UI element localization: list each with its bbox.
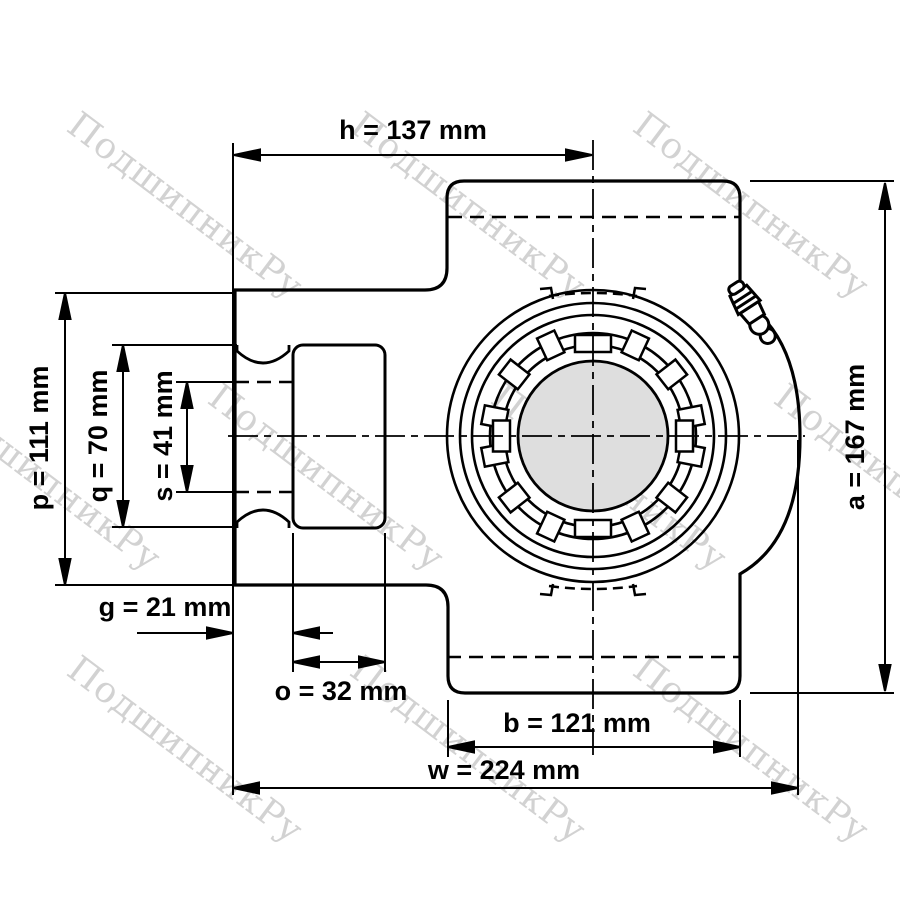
- watermark-text: ПодшипникРу: [60, 648, 311, 851]
- guide-groove-bottom: [237, 510, 289, 528]
- arrowhead: [234, 150, 260, 161]
- arrowhead: [60, 293, 71, 319]
- watermark-text: ПодшипникРу: [767, 376, 900, 579]
- drawing-canvas: ПодшипникРу ПодшипникРу ПодшипникРу Подш…: [0, 0, 900, 900]
- arrowhead: [60, 559, 71, 585]
- arrowhead: [293, 657, 319, 668]
- dimension-lines: [60, 150, 891, 794]
- arrowhead: [566, 150, 592, 161]
- dim-label-b: b = 121 mm: [503, 708, 651, 738]
- dim-label-o: o = 32 mm: [275, 676, 408, 706]
- arrowhead: [182, 382, 193, 408]
- arrowhead: [207, 628, 233, 639]
- arrowhead: [880, 183, 891, 209]
- dim-label-w: w = 224 mm: [427, 755, 580, 785]
- watermark-text: ПодшипникРу: [626, 648, 877, 851]
- dim-label-h: h = 137 mm: [339, 115, 487, 145]
- arrowhead: [293, 628, 319, 639]
- arrowhead: [880, 665, 891, 691]
- arrowhead: [182, 466, 193, 492]
- bearing-drawing: ПодшипникРу ПодшипникРу ПодшипникРу Подш…: [0, 0, 900, 900]
- dim-label-p: p = 111 mm: [24, 366, 54, 511]
- grease-nipple: [723, 277, 783, 349]
- dim-label-g: g = 21 mm: [99, 592, 232, 622]
- watermark-text: ПодшипникРу: [60, 104, 311, 307]
- washer-tab: [537, 512, 564, 542]
- dim-label-q: q = 70 mm: [83, 370, 113, 503]
- arrowhead: [118, 345, 129, 371]
- dim-label-a: a = 167 mm: [840, 364, 870, 510]
- watermark-text: ПодшипникРу: [201, 376, 452, 579]
- dim-label-s: s = 41 mm: [148, 370, 178, 501]
- washer-tab: [622, 330, 649, 360]
- washer-tab: [537, 330, 564, 360]
- guide-groove-top: [237, 345, 289, 363]
- watermark-text: ПодшипникРу: [626, 104, 877, 307]
